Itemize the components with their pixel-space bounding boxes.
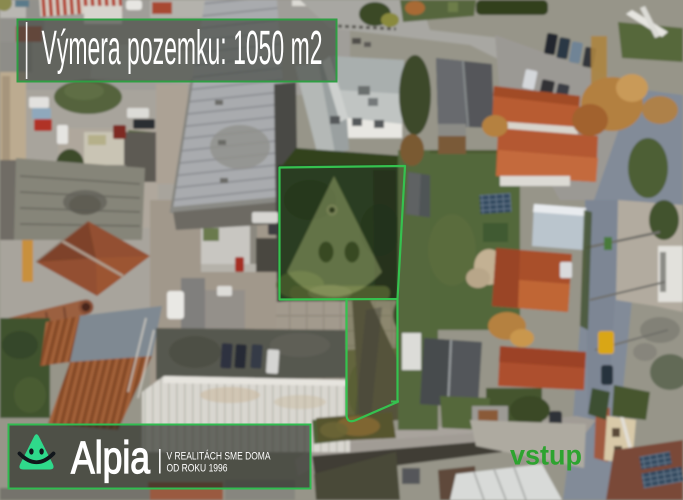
svg-text:Alpia: Alpia — [71, 432, 151, 483]
svg-text:Výmera pozemku: 1050 m2: Výmera pozemku: 1050 m2 — [42, 22, 323, 75]
svg-text:vstup: vstup — [510, 440, 582, 471]
svg-text:V REALITÁCH SME DOMA: V REALITÁCH SME DOMA — [167, 450, 272, 463]
svg-text:OD ROKU 1996: OD ROKU 1996 — [167, 463, 228, 475]
